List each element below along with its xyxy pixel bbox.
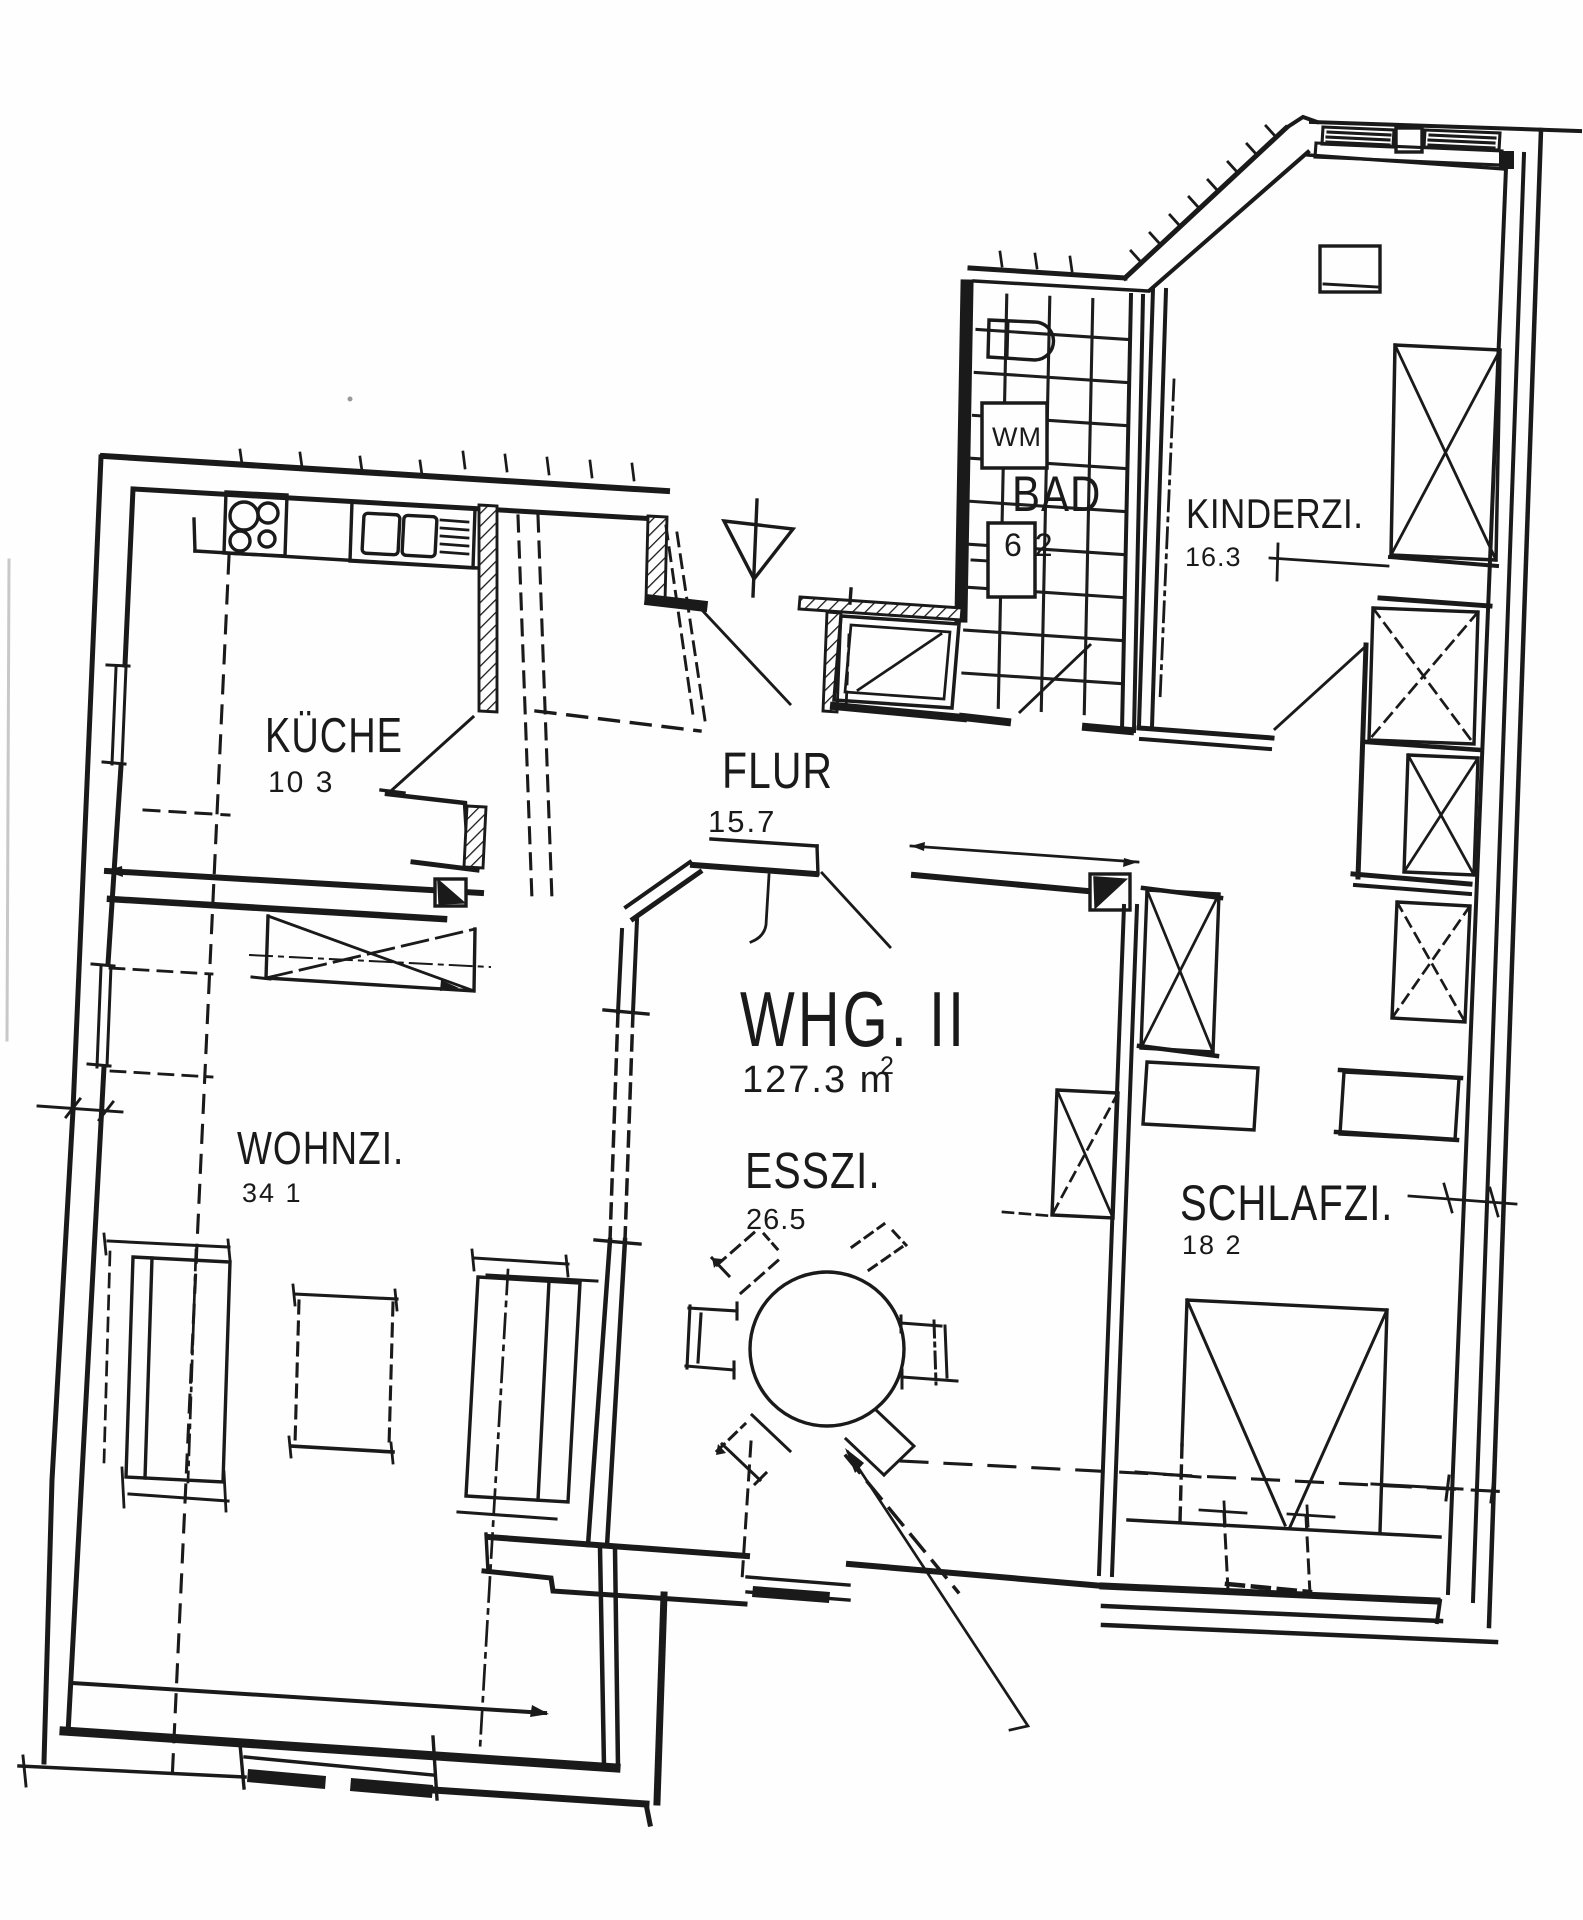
svg-text:15.7: 15.7: [708, 804, 776, 839]
svg-text:34 1: 34 1: [242, 1178, 303, 1208]
svg-text:WOHNZI.: WOHNZI.: [237, 1122, 404, 1174]
svg-text:26.5: 26.5: [746, 1204, 806, 1236]
svg-text:16.3: 16.3: [1185, 542, 1242, 572]
svg-text:127.3 m: 127.3 m: [742, 1059, 893, 1101]
svg-text:KÜCHE: KÜCHE: [265, 708, 403, 763]
svg-text:SCHLAFZI.: SCHLAFZI.: [1180, 1175, 1393, 1231]
svg-text:2: 2: [880, 1052, 894, 1080]
svg-text:10 3: 10 3: [268, 766, 334, 799]
svg-text:BAD: BAD: [1012, 465, 1101, 521]
svg-text:WM: WM: [992, 422, 1042, 452]
svg-text:ESSZI.: ESSZI.: [745, 1142, 881, 1199]
svg-text:KINDERZI.: KINDERZI.: [1186, 491, 1363, 538]
svg-text:6 2: 6 2: [1004, 527, 1054, 563]
svg-text:WHG. II: WHG. II: [740, 976, 967, 1064]
svg-text:18 2: 18 2: [1182, 1230, 1243, 1260]
svg-text:FLUR: FLUR: [722, 742, 833, 799]
